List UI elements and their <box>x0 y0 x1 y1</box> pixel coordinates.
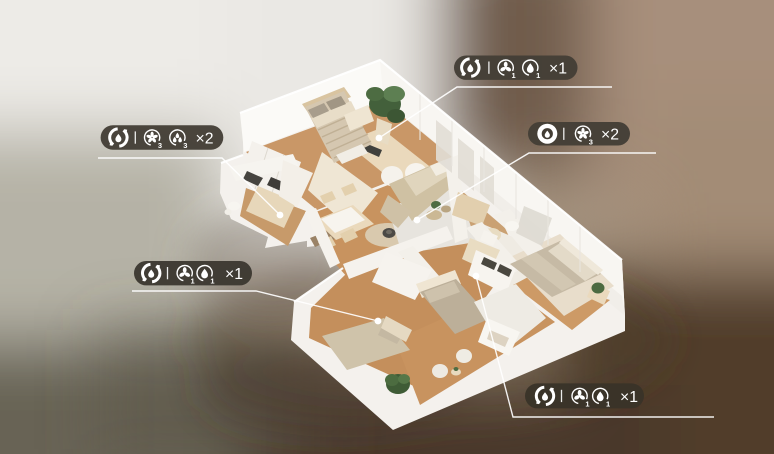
svg-text:1: 1 <box>210 277 214 286</box>
svg-text:1: 1 <box>606 400 610 409</box>
svg-text:×2: ×2 <box>196 131 214 148</box>
svg-text:×1: ×1 <box>225 266 243 283</box>
svg-text:×1: ×1 <box>620 389 638 406</box>
svg-text:1: 1 <box>512 71 516 80</box>
svg-text:1: 1 <box>536 71 540 80</box>
svg-text:1: 1 <box>191 277 195 286</box>
svg-text:×1: ×1 <box>549 61 567 78</box>
svg-text:1: 1 <box>585 400 589 409</box>
svg-text:3: 3 <box>183 141 187 150</box>
svg-text:3: 3 <box>158 141 162 150</box>
svg-text:×2: ×2 <box>601 127 619 144</box>
svg-text:3: 3 <box>589 137 593 146</box>
